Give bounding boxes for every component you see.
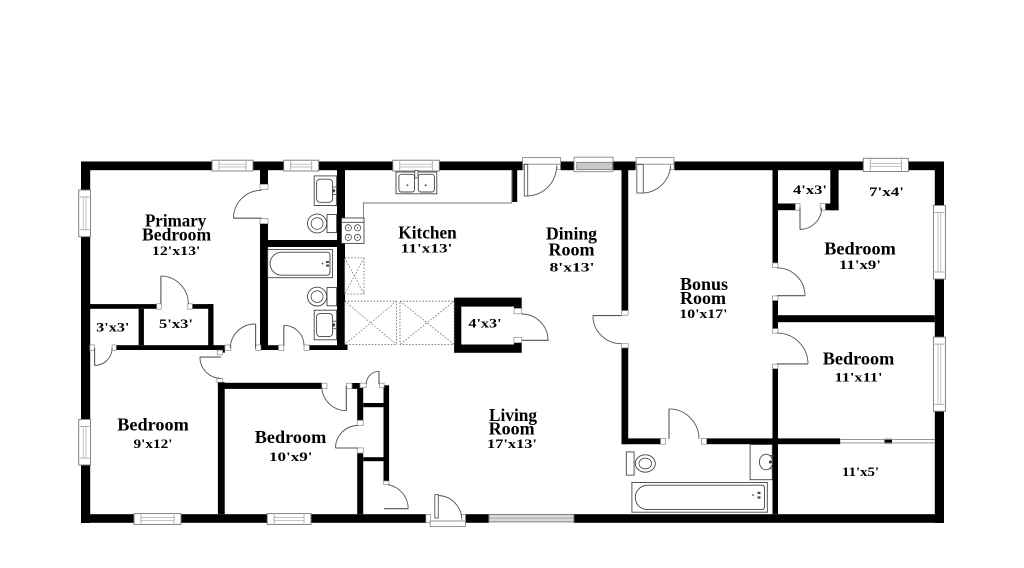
- svg-text:12'x13': 12'x13': [152, 243, 201, 258]
- svg-text:Bedroom: Bedroom: [142, 224, 211, 244]
- svg-text:3'x3': 3'x3': [96, 319, 129, 334]
- svg-text:Bedroom: Bedroom: [255, 427, 327, 447]
- svg-text:4'x3': 4'x3': [793, 182, 827, 197]
- svg-text:10'x17': 10'x17': [679, 306, 727, 321]
- svg-text:11'x13': 11'x13': [401, 240, 453, 255]
- svg-text:Room: Room: [549, 240, 595, 260]
- svg-text:17'x13': 17'x13': [487, 436, 537, 451]
- svg-text:7'x4': 7'x4': [869, 184, 904, 199]
- svg-text:4'x3': 4'x3': [468, 315, 501, 330]
- svg-text:11'x11': 11'x11': [835, 369, 883, 384]
- svg-text:Bedroom: Bedroom: [824, 239, 896, 259]
- svg-text:11'x9': 11'x9': [839, 257, 881, 272]
- svg-text:9'x12': 9'x12': [134, 436, 173, 451]
- svg-text:11'x5': 11'x5': [842, 464, 879, 479]
- svg-text:Bedroom: Bedroom: [823, 349, 895, 369]
- svg-text:5'x3': 5'x3': [159, 316, 193, 331]
- svg-text:10'x9': 10'x9': [269, 449, 313, 464]
- svg-text:Bedroom: Bedroom: [117, 415, 189, 435]
- svg-text:8'x13': 8'x13': [550, 259, 595, 274]
